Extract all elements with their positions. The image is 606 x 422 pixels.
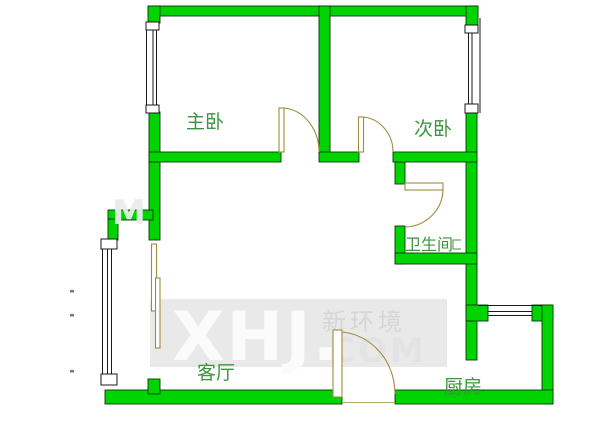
wall-bedroom-bottom-mid <box>319 152 359 162</box>
wall-bathroom-left-upper <box>395 162 405 184</box>
door-leaf <box>405 183 443 190</box>
wall-bathroom-bottom <box>395 253 477 264</box>
wall-right-top-stub <box>466 6 478 26</box>
door-swing-arc <box>284 108 319 152</box>
window-cap <box>101 374 117 385</box>
bathroom-fixture-glyph <box>453 240 461 249</box>
wall-top <box>148 6 478 16</box>
dimension-ticks <box>70 290 74 373</box>
tick-mark <box>70 290 74 293</box>
wall-bathroom-top <box>393 152 477 162</box>
wall-right-long <box>466 112 477 360</box>
wall-bottom-left <box>105 390 342 404</box>
door-swing-arc <box>405 190 443 227</box>
door-swing-arc <box>363 117 393 152</box>
floor-plan-page: XHJ. 新环境 COM <box>0 0 606 422</box>
wall-sliding-door-stub <box>148 379 160 394</box>
label-second-bedroom: 次卧 <box>414 118 452 140</box>
window-cap <box>101 239 117 249</box>
door-second-bedroom <box>359 117 394 152</box>
wall-bedroom-divider <box>319 6 330 153</box>
door-leaf <box>359 117 364 152</box>
label-kitchen: 厨房 <box>444 376 482 398</box>
label-master-bedroom: 主卧 <box>186 111 224 133</box>
window-master-bedroom <box>146 22 159 113</box>
door-master-bedroom <box>279 108 319 152</box>
door-leaf <box>333 330 342 397</box>
window-cap <box>146 22 159 30</box>
window-balcony <box>101 239 117 385</box>
door-bathroom <box>405 183 443 227</box>
window-cap <box>146 105 159 113</box>
label-living-room: 客厅 <box>197 362 235 384</box>
door-leaf <box>279 108 284 152</box>
sliding-door-panel <box>156 278 161 348</box>
wall-bedroom-bottom-left <box>149 152 281 162</box>
floor-plan-canvas: XHJ. 新环境 COM <box>0 0 606 422</box>
wall-kitchen-window-stub-left <box>466 305 488 321</box>
wall-left-mid <box>149 112 160 240</box>
watermark: XHJ. 新环境 COM <box>150 298 447 377</box>
tick-mark <box>70 314 74 317</box>
label-bathroom: 卫生间 <box>405 235 453 254</box>
wall-left-top-stub <box>148 6 160 23</box>
window-cap <box>465 25 478 33</box>
watermark-faint-fragment: M <box>112 193 146 233</box>
tick-mark <box>70 370 74 373</box>
wall-kitchen-right <box>542 305 553 404</box>
window-cap <box>465 104 478 113</box>
window-second-bedroom <box>465 18 480 113</box>
